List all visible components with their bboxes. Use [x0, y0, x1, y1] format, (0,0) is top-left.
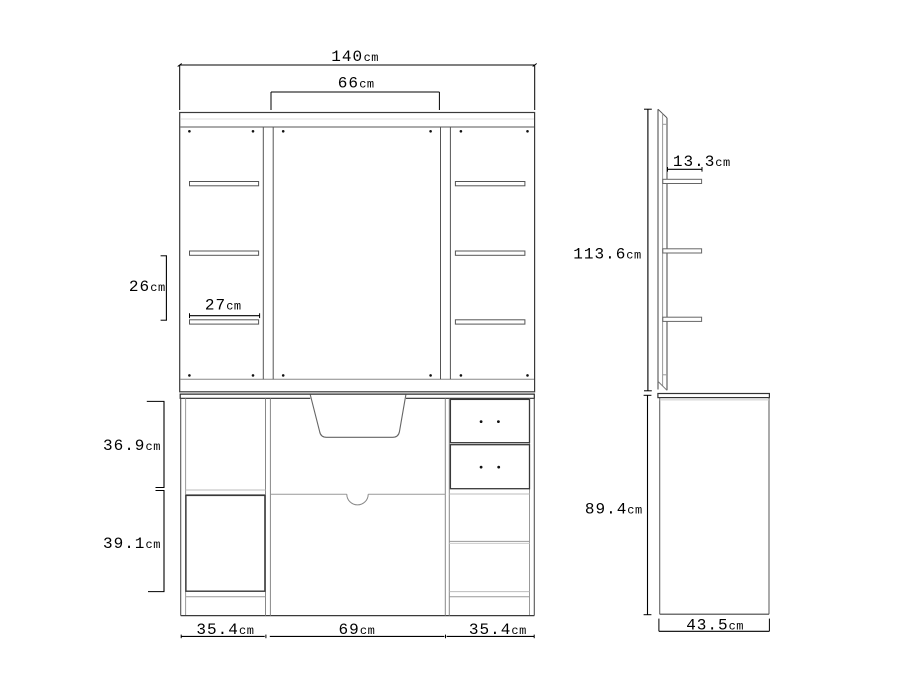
svg-text:cm: cm — [715, 156, 730, 170]
svg-text:35.4: 35.4 — [196, 621, 238, 639]
svg-text:cm: cm — [239, 624, 254, 638]
svg-text:89.4: 89.4 — [585, 501, 627, 519]
svg-text:26: 26 — [129, 278, 150, 296]
svg-text:cm: cm — [150, 281, 165, 295]
svg-text:cm: cm — [360, 624, 375, 638]
svg-text:cm: cm — [359, 78, 374, 92]
svg-text:cm: cm — [226, 300, 241, 314]
svg-text:13.3: 13.3 — [673, 153, 715, 171]
svg-text:cm: cm — [146, 440, 161, 454]
svg-text:140: 140 — [331, 48, 363, 66]
svg-text:cm: cm — [511, 624, 526, 638]
svg-text:27: 27 — [205, 297, 226, 315]
svg-text:69: 69 — [339, 621, 360, 639]
svg-text:35.4: 35.4 — [469, 621, 511, 639]
svg-text:113.6: 113.6 — [573, 246, 626, 264]
svg-text:cm: cm — [146, 538, 161, 552]
svg-text:39.1: 39.1 — [103, 535, 145, 553]
svg-text:cm: cm — [627, 504, 642, 518]
svg-text:66: 66 — [338, 75, 359, 93]
svg-text:cm: cm — [729, 620, 744, 634]
svg-text:cm: cm — [364, 51, 379, 65]
svg-text:43.5: 43.5 — [686, 617, 728, 635]
svg-text:cm: cm — [626, 249, 641, 263]
svg-text:36.9: 36.9 — [103, 437, 145, 455]
